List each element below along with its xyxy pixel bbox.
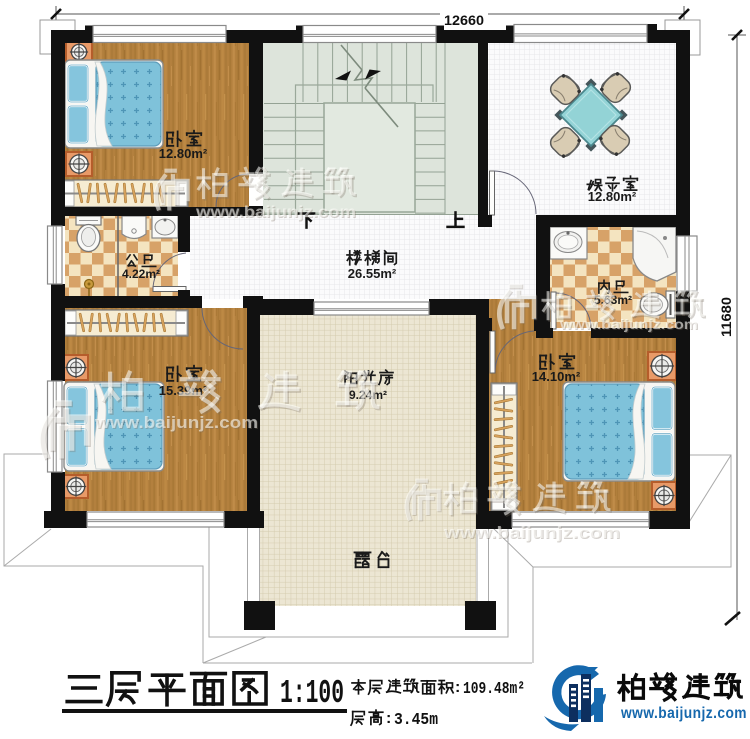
svg-text:www.baijunjz.com: www.baijunjz.com xyxy=(443,523,620,542)
svg-text:www.baijunjz.com: www.baijunjz.com xyxy=(195,204,356,221)
svg-text:12.80m²: 12.80m² xyxy=(159,146,208,161)
svg-text:14.10m²: 14.10m² xyxy=(532,369,581,384)
svg-text:11680: 11680 xyxy=(719,297,734,337)
svg-text:12.80m²: 12.80m² xyxy=(588,189,637,204)
svg-text:4.22m²: 4.22m² xyxy=(122,267,160,281)
svg-text::: : xyxy=(386,710,391,727)
svg-text:1:100: 1:100 xyxy=(280,675,344,712)
svg-text:109.48m²: 109.48m² xyxy=(463,680,525,699)
svg-text::: : xyxy=(455,679,460,696)
svg-text:www.baijunjz.com: www.baijunjz.com xyxy=(94,413,258,432)
svg-text:www.baijunjz.com: www.baijunjz.com xyxy=(559,316,698,332)
svg-text:12660: 12660 xyxy=(444,13,484,28)
svg-text:www.baijunjz.com: www.baijunjz.com xyxy=(620,705,747,722)
svg-text:3.45m: 3.45m xyxy=(394,711,438,730)
svg-text:26.55m²: 26.55m² xyxy=(348,266,397,281)
